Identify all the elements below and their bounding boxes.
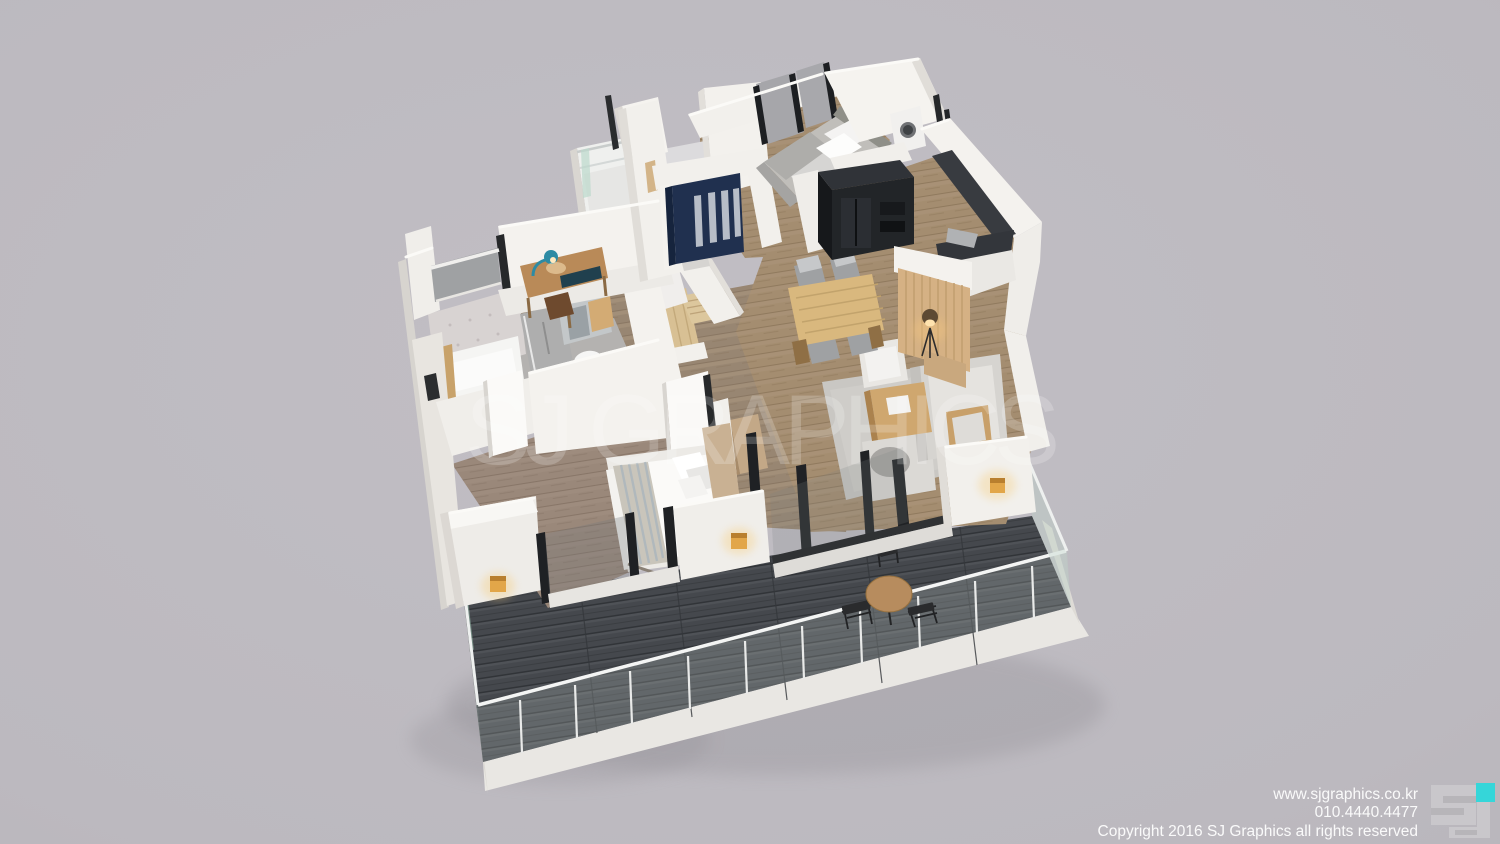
- svg-text:www.sjgraphics.co.kr: www.sjgraphics.co.kr: [1272, 786, 1418, 803]
- svg-text:SJ GRAPHICS: SJ GRAPHICS: [465, 374, 1056, 485]
- svg-text:Copyright 2016 SJ Graphics all: Copyright 2016 SJ Graphics all rights re…: [1098, 823, 1418, 840]
- svg-text:010.4440.4477: 010.4440.4477: [1315, 804, 1418, 821]
